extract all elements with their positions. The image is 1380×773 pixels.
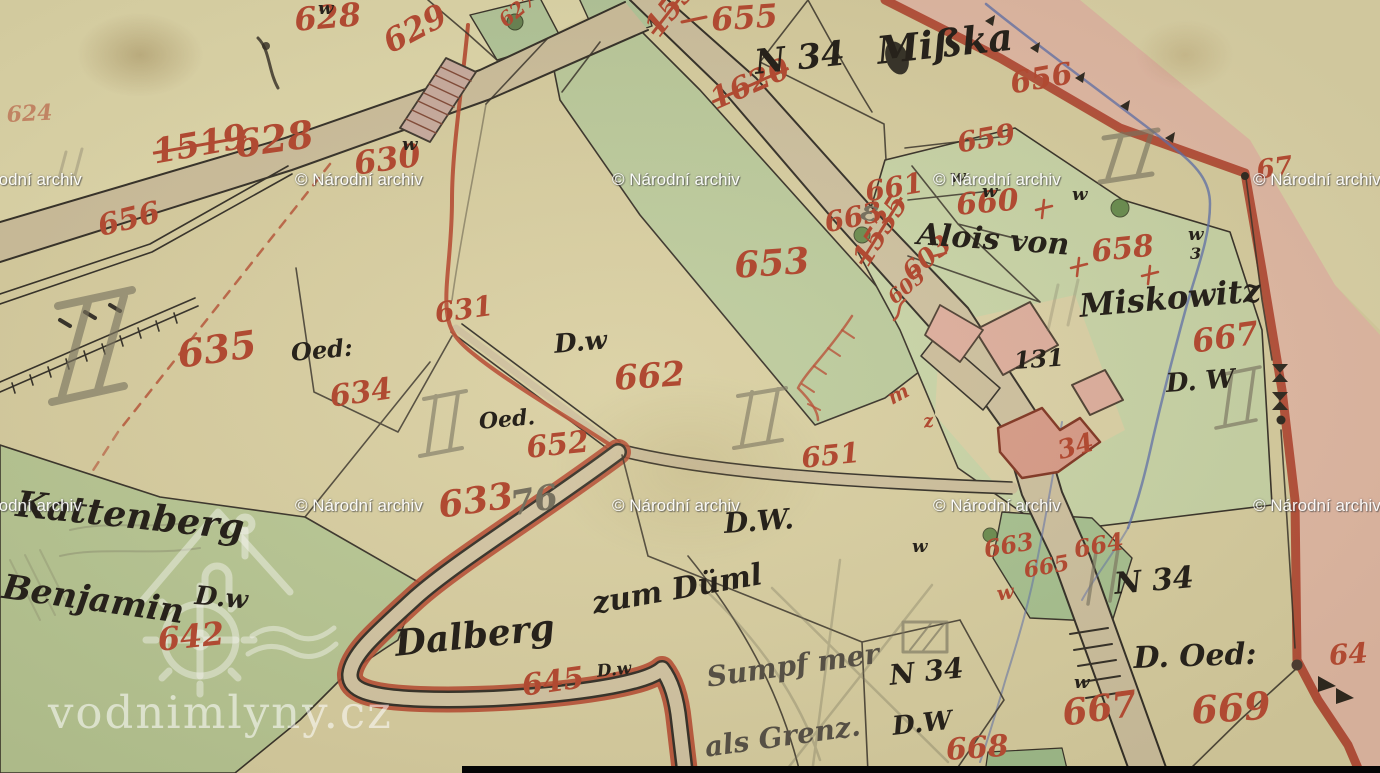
parcel-number-658: 658 [1090,231,1155,267]
parcel-number-662: 662 [613,357,686,396]
map-text-w: w [912,538,928,556]
scan-edge-bar [462,766,1380,773]
map-text-zumdüml: zum Düml [590,560,765,619]
map-text-dalberg: Dalberg [393,609,556,662]
map-text-dw: D.w [596,660,632,681]
parcel-number-659: 659 [955,120,1017,158]
map-text-dw: D.w [194,583,249,614]
parcel-number-635: 635 [175,325,259,374]
parcel-number-667: 667 [1190,317,1261,358]
parcel-number-656: 656 [1008,59,1075,99]
map-text-dw: D. W [1165,366,1236,397]
parcel-number-668: 668 [945,732,1010,766]
parcel-number-664: 664 [1072,529,1126,561]
watermark-narodni-archiv: © Národní archiv [295,170,423,190]
watermark-narodni-archiv: © Národní archiv [612,496,740,516]
parcel-number-633: 633 [436,478,515,524]
pencil-text-76: 76 [508,480,561,522]
parcel-number-651: 651 [800,439,861,473]
watermark-narodni-archiv: © Národní archiv [933,496,1061,516]
map-text-dw: D.W [891,708,953,740]
parcel-number-34: 34 [1055,430,1097,464]
parcel-number-656: 656 [95,198,163,242]
parcel-number-665: 665 [1022,552,1071,582]
watermark-narodni-archiv: © Národní archiv [0,170,82,190]
map-text-benjamin: Benjamin [0,570,186,629]
parcel-number-652: 652 [525,427,590,463]
map-text-n34: N 34 [753,37,846,80]
parcel-number-667: 667 [1060,686,1139,732]
map-text-w: w [1072,186,1088,204]
map-text-w: w [1074,674,1090,692]
cadastral-map: 6246286291519628656630627153516206556566… [0,0,1380,773]
parcel-number-624: 624 [6,102,53,126]
pencil-note-alsgrenz: als Grenz. [703,712,862,762]
map-text-dw: D.w [553,327,608,358]
watermark-narodni-archiv: © Národní archiv [933,170,1061,190]
parcel-number-653: 653 [733,243,810,284]
map-text-3: 3 [1190,246,1201,262]
parcel-number-605: 605 [884,265,929,307]
parcel-number-w: w [995,581,1015,604]
watermark-vodnimlyny: vodnimlyny.cz [48,686,393,739]
map-text-mißka: Mißka [875,18,1015,70]
watermark-narodni-archiv: © Národní archiv [612,170,740,190]
map-text-n34: N 34 [1113,563,1195,600]
map-text-w: w [1188,226,1204,244]
parcel-number-629: 629 [378,0,452,58]
map-text-oed: Oed. [478,406,536,433]
parcel-number-1535: 1535 [640,0,715,42]
watermark-narodni-archiv: © Národní archiv [0,496,82,516]
parcel-number-669: 669 [1190,686,1272,729]
map-text-oed: Oed: [290,336,354,365]
map-labels-layer: 6246286291519628656630627153516206556566… [0,0,1380,773]
parcel-number-627: 627 [495,0,540,30]
parcel-number-z: z [922,412,935,432]
parcel-number-628: 628 [232,115,316,164]
watermark-narodni-archiv: © Národní archiv [1253,496,1380,516]
map-text-n34: N 34 [888,654,965,690]
watermark-narodni-archiv: © Národní archiv [1253,170,1380,190]
pencil-note-sumpfmer: Sumpf mer [705,640,881,692]
parcel-number-m: m [884,380,912,408]
watermark-narodni-archiv: © Národní archiv [295,496,423,516]
map-text-doed: D. Oed: [1133,640,1257,674]
parcel-number-645: 645 [520,663,586,701]
parcel-number-64: 64 [1328,639,1369,670]
map-text-131: 131 [1013,346,1065,373]
parcel-number-634: 634 [328,374,394,412]
map-text-w: w [318,0,334,18]
map-text-miskowitz: Miskowitz [1078,274,1262,322]
parcel-number-655: 655 [710,0,779,36]
map-text-w: w [402,136,418,154]
parcel-number-631: 631 [433,292,495,328]
